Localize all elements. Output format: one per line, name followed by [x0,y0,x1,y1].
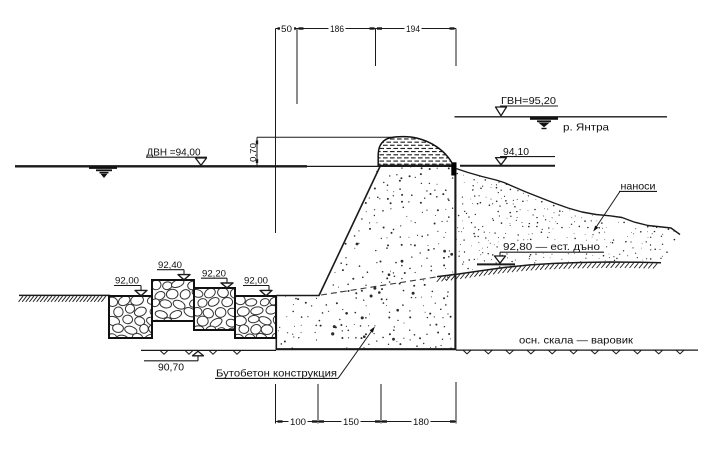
svg-text:ДВН =94,00: ДВН =94,00 [147,146,201,158]
svg-text:90,70: 90,70 [158,361,184,373]
svg-text:0,70: 0,70 [248,143,258,162]
svg-text:100: 100 [290,417,306,427]
svg-text:94,10: 94,10 [503,146,529,158]
svg-text:р. Янтра: р. Янтра [563,121,609,133]
svg-text:Бутобетон конструкция: Бутобетон конструкция [216,367,337,379]
svg-text:92,80 — ест. дъно: 92,80 — ест. дъно [503,241,600,253]
svg-text:50: 50 [281,24,292,34]
svg-text:186: 186 [330,24,344,34]
svg-text:150: 150 [343,417,359,427]
svg-text:194: 194 [406,24,420,34]
svg-text:92,20: 92,20 [202,268,226,279]
svg-text:92,40: 92,40 [158,260,182,271]
svg-text:осн. скала — варовик: осн. скала — варовик [519,334,633,346]
svg-text:ГВН=95,20: ГВН=95,20 [501,95,556,107]
svg-text:наноси: наноси [621,180,656,192]
svg-text:180: 180 [413,417,429,427]
